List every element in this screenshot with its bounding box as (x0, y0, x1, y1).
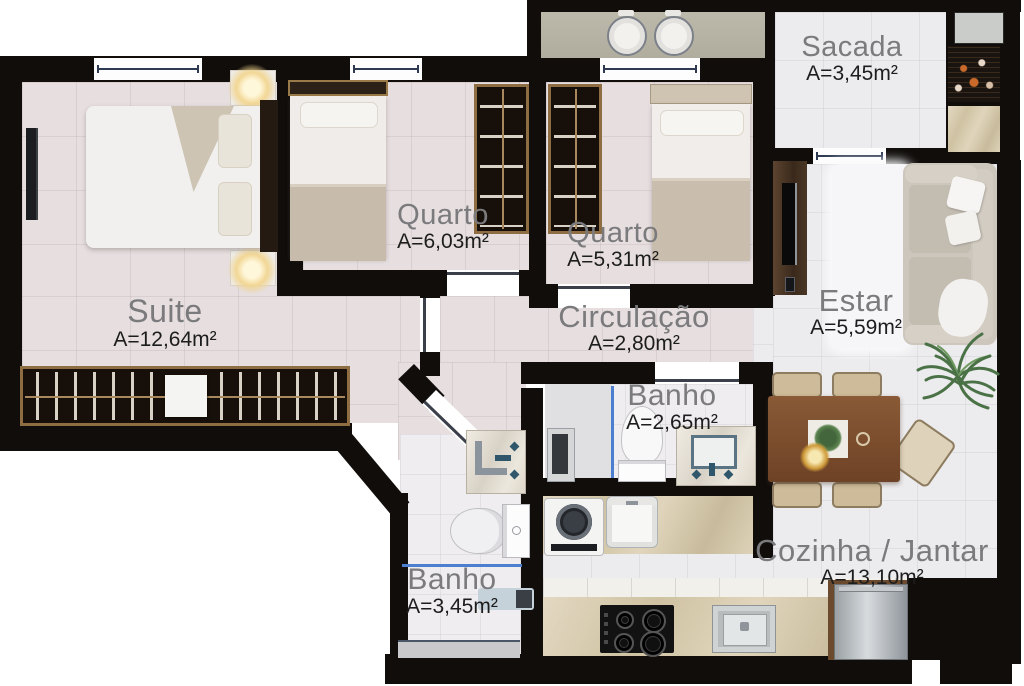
room-area: A=3,45m² (406, 596, 498, 619)
cup (856, 432, 870, 446)
laundry-tub-tab (665, 10, 681, 16)
room-label-quarto2: Quarto A=5,31m² (567, 218, 659, 272)
grill-window (954, 12, 1004, 44)
suite-window (94, 58, 202, 80)
pillow (218, 182, 252, 236)
floor-plan: Sacada A=3,45m² Quarto A=6,03m² Quarto A… (0, 0, 1024, 686)
headboard (288, 80, 388, 96)
faucet (495, 455, 511, 461)
room-name: Quarto (397, 200, 489, 231)
bathroom-vanity (466, 430, 526, 494)
room-label-suite: Suite A=12,64m² (113, 294, 216, 351)
quarto1-door (447, 270, 519, 296)
wardrobe-box (165, 375, 207, 417)
room-label-quarto1: Quarto A=6,03m² (397, 200, 489, 254)
room-label-cozinha: Cozinha / Jantar A=13,10m² (755, 534, 989, 590)
room-area: A=6,03m² (397, 231, 489, 254)
blanket (290, 184, 386, 261)
plant-icon (924, 350, 996, 414)
faucet (740, 622, 749, 631)
wall-quarto1-quarto2 (529, 56, 546, 308)
room-area: A=5,31m² (567, 249, 659, 272)
single-bed (288, 80, 388, 260)
single-bed (650, 84, 752, 260)
room-name: Cozinha / Jantar (755, 534, 989, 567)
suite-door (420, 298, 440, 352)
pendant-lamp-icon (800, 442, 830, 472)
wall-sacada-estar-b (886, 148, 948, 164)
tv-icon (26, 128, 38, 220)
room-name: Suite (113, 294, 216, 329)
room-name: Estar (810, 284, 902, 317)
room-name: Banho (626, 380, 718, 412)
dining-chair (772, 482, 822, 508)
laundry-counter-top (541, 12, 765, 58)
fridge-icon (834, 584, 908, 660)
room-name: Sacada (801, 32, 902, 63)
dining-table (768, 396, 900, 482)
room-area: A=2,65m² (626, 412, 718, 435)
wall-suite-bottom (0, 423, 352, 451)
shower-glass (611, 386, 614, 478)
room-label-estar: Estar A=5,59m² (810, 284, 902, 340)
barbecue-grill-icon (948, 46, 1000, 102)
suite-wardrobe (20, 366, 350, 426)
wall-quarto2-sacada-estar (753, 60, 775, 296)
grill-counter (948, 106, 1000, 152)
faucet (709, 463, 715, 476)
wall-bottom-notch (912, 658, 940, 684)
laundry-tub-icon (654, 16, 694, 56)
washing-machine-icon (544, 498, 604, 556)
room-area: A=13,10m² (755, 567, 989, 590)
shower-icon (547, 428, 575, 482)
cooktop-icon (600, 605, 674, 653)
toilet-icon (450, 504, 536, 556)
wall-laundry-left (527, 0, 541, 58)
room-label-sacada: Sacada A=3,45m² (801, 32, 902, 86)
lamp-glow (228, 246, 276, 294)
room-area: A=12,64m² (113, 329, 216, 352)
tv-icon (782, 183, 797, 265)
laundry-sink-icon (606, 496, 658, 548)
room-label-banho-social: Banho A=3,45m² (406, 564, 498, 619)
tv-panel (773, 161, 807, 295)
kitchen-sink-icon (712, 605, 776, 653)
double-bed (86, 106, 262, 248)
sofa (903, 163, 997, 345)
room-name: Quarto (567, 218, 659, 249)
dining-chair (832, 372, 882, 398)
quarto1-window (350, 58, 422, 80)
remote (785, 277, 795, 292)
dining-chair (772, 372, 822, 398)
pillow (300, 102, 378, 128)
room-area: A=2,80m² (558, 333, 709, 356)
sacada-sliding-door (813, 148, 886, 164)
dining-chair (832, 482, 882, 508)
wall-kitchen-corner (908, 578, 1000, 660)
room-area: A=5,59m² (810, 317, 902, 340)
headboard (650, 84, 752, 104)
room-name: Circulação (558, 300, 709, 333)
pillow (218, 114, 252, 168)
headboard (260, 100, 278, 252)
room-area: A=3,45m² (801, 63, 902, 86)
room-label-banho-suite: Banho A=2,65m² (626, 380, 718, 435)
pillow (660, 110, 744, 136)
quarto2-wardrobe (548, 84, 602, 234)
quarto2-window (600, 58, 700, 80)
laundry-tub-tab (618, 10, 634, 16)
shower-mat (398, 640, 520, 658)
room-name: Banho (406, 564, 498, 596)
blanket (652, 178, 750, 261)
room-label-circulacao: Circulação A=2,80m² (558, 300, 709, 356)
wall-left (0, 56, 22, 449)
laundry-tub-icon (607, 16, 647, 56)
